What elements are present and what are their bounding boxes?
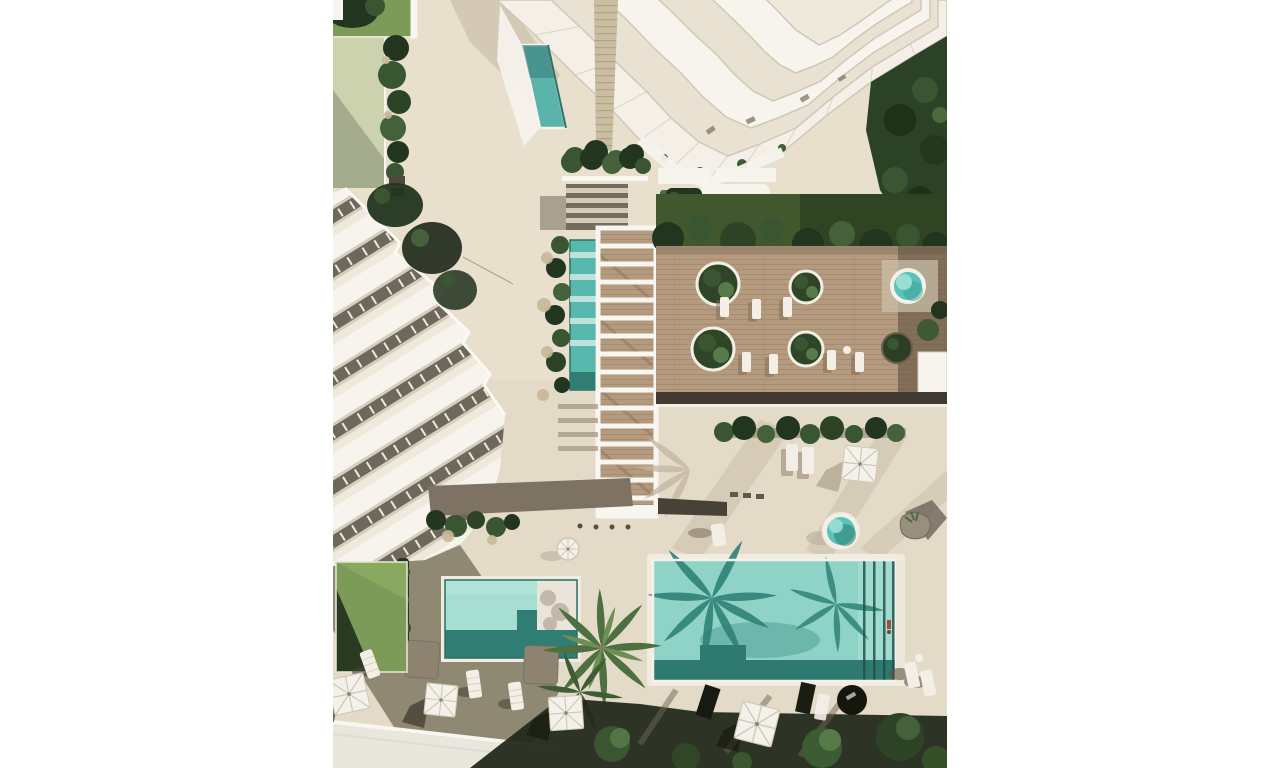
sun-lounger xyxy=(855,352,864,372)
deck-planter xyxy=(692,328,734,370)
site-plan-render xyxy=(0,0,1280,768)
deck-planter xyxy=(882,333,912,363)
plaza-loungers xyxy=(781,444,814,479)
square-umbrella xyxy=(328,673,371,716)
deck-edge-shadow xyxy=(656,392,947,404)
hot-tub-deck xyxy=(882,260,938,312)
sun-mat xyxy=(405,640,441,679)
square-umbrella xyxy=(841,445,878,482)
white-margin-right xyxy=(947,0,1280,768)
aerial-site-plan xyxy=(0,0,1280,768)
square-umbrella xyxy=(548,695,584,731)
roof-deck-lounge xyxy=(652,168,950,407)
deck-planter xyxy=(697,263,739,305)
round-daybed xyxy=(837,685,867,715)
sun-lounger xyxy=(786,444,798,471)
sun-lounger xyxy=(720,297,729,317)
main-pool xyxy=(647,539,937,697)
square-umbrella xyxy=(734,701,780,747)
sun-lounger xyxy=(742,352,751,372)
sun-lounger xyxy=(752,299,761,319)
side-table xyxy=(843,346,851,354)
deck-pavilion xyxy=(918,352,947,394)
pool-deep-edge xyxy=(653,660,896,681)
sun-lounger xyxy=(802,447,814,474)
deck-planter xyxy=(790,271,822,303)
side-table xyxy=(915,654,923,662)
white-margin-left xyxy=(0,0,333,768)
sun-lounger xyxy=(783,297,792,317)
sun-lounger xyxy=(827,350,836,370)
deck-planter xyxy=(789,332,823,366)
square-umbrella xyxy=(424,683,458,717)
pergola-lap-pool xyxy=(570,240,596,390)
pool-ladder xyxy=(887,620,891,629)
sun-lounger xyxy=(769,354,778,374)
